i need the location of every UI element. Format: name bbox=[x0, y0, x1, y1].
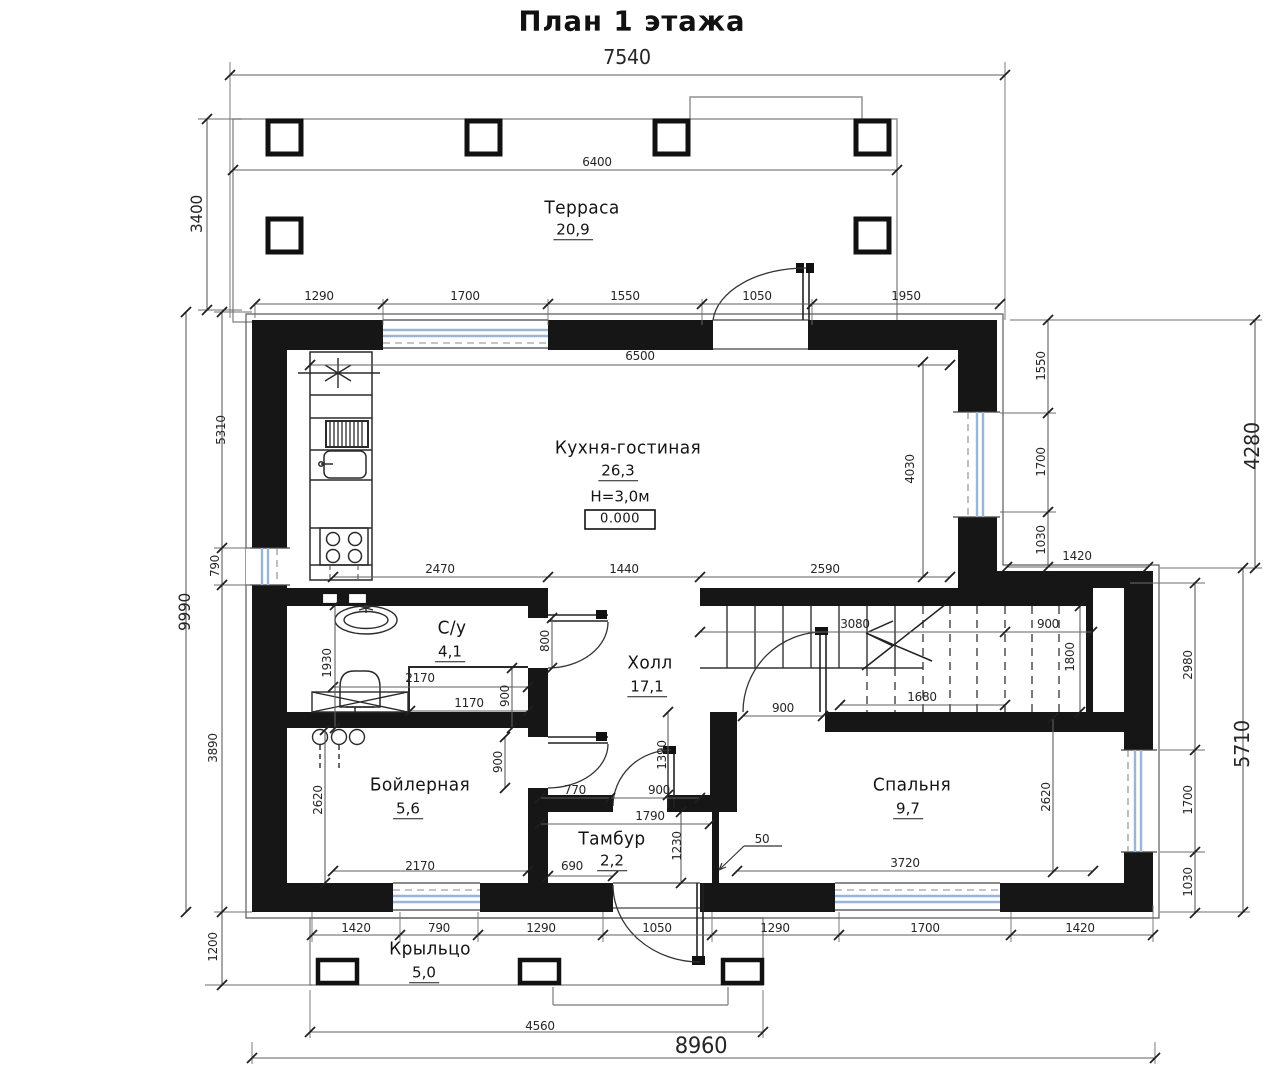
dimension-label: 1440 bbox=[609, 563, 638, 576]
dimension-label: 1230 bbox=[671, 831, 684, 860]
room-area: 9,7 bbox=[893, 801, 923, 819]
dimension-label: 2590 bbox=[810, 563, 839, 576]
dimension-label: 1030 bbox=[1035, 525, 1048, 554]
dimension-label: 1700 bbox=[910, 922, 939, 935]
room-name: Кухня-гостиная bbox=[555, 440, 701, 458]
room-area: 17,1 bbox=[627, 679, 666, 697]
dimension-label: 790 bbox=[209, 555, 222, 577]
dimension-label: 790 bbox=[428, 922, 450, 935]
dimension-label: 1420 bbox=[341, 922, 370, 935]
dimension-label: 1420 bbox=[1062, 550, 1091, 563]
dimension-label: 800 bbox=[539, 630, 552, 652]
dimension-label: 690 bbox=[561, 860, 583, 873]
dimension-label: 1390 bbox=[656, 740, 669, 769]
dimension-label: 1680 bbox=[907, 691, 936, 704]
dimension-label: 3720 bbox=[890, 857, 919, 870]
dimension-label: 900 bbox=[499, 685, 512, 707]
dimension-label: 1290 bbox=[526, 922, 555, 935]
room-name: С/у bbox=[438, 620, 467, 638]
dimension-label: 1700 bbox=[1182, 785, 1195, 814]
dimension-label: 5710 bbox=[1232, 720, 1252, 768]
dimension-label: 2170 bbox=[405, 672, 434, 685]
room-area: 20,9 bbox=[553, 222, 592, 240]
dimension-label: 900 bbox=[648, 784, 670, 797]
room-area: 2,2 bbox=[597, 853, 627, 871]
dimension-label: 1030 bbox=[1182, 867, 1195, 896]
dimension-label: 770 bbox=[564, 784, 586, 797]
room-name: Терраса bbox=[544, 200, 619, 218]
dimension-label: 2620 bbox=[1040, 782, 1053, 811]
dimension-label: 1050 bbox=[742, 290, 771, 303]
dimension-label: 900 bbox=[492, 751, 505, 773]
ceiling-height-label: H=3,0м bbox=[590, 489, 649, 505]
dimension-label: 1790 bbox=[635, 810, 664, 823]
dimension-label: 50 bbox=[755, 833, 770, 846]
dimension-label: 1050 bbox=[642, 922, 671, 935]
dimension-label: 1200 bbox=[207, 932, 220, 961]
dimension-label: 2170 bbox=[405, 860, 434, 873]
dimension-label: 4030 bbox=[904, 454, 917, 483]
dimension-label: 8960 bbox=[675, 1036, 728, 1058]
room-area: 5,0 bbox=[409, 965, 439, 983]
dimension-label: 900 bbox=[1037, 618, 1059, 631]
room-name: Бойлерная bbox=[370, 777, 470, 795]
dimension-label: 1930 bbox=[321, 648, 334, 677]
dimension-label: 1550 bbox=[1035, 351, 1048, 380]
dimension-label: 1700 bbox=[450, 290, 479, 303]
dimension-label: 6400 bbox=[582, 156, 611, 169]
dimension-label: 3400 bbox=[189, 195, 205, 233]
dimension-label: 5310 bbox=[215, 415, 228, 444]
dimension-label: 4280 bbox=[1242, 422, 1262, 470]
room-name: Тамбур bbox=[578, 831, 645, 849]
room-area: 4,1 bbox=[435, 644, 465, 662]
dimension-label: 1700 bbox=[1035, 447, 1048, 476]
room-area: 26,3 bbox=[598, 463, 637, 481]
dimension-label: 4560 bbox=[525, 1020, 554, 1033]
dimension-label: 9990 bbox=[177, 593, 193, 631]
dimension-label: 3890 bbox=[207, 733, 220, 762]
elevation-label: 0.000 bbox=[600, 512, 640, 526]
room-area: 5,6 bbox=[393, 801, 423, 819]
dimension-label: 6500 bbox=[625, 350, 654, 363]
room-name: Холл bbox=[627, 655, 672, 673]
dimension-label: 1950 bbox=[891, 290, 920, 303]
room-name: Крыльцо bbox=[389, 941, 471, 959]
dimension-label: 2980 bbox=[1182, 650, 1195, 679]
dimension-label: 1550 bbox=[610, 290, 639, 303]
dimension-label: 1420 bbox=[1065, 922, 1094, 935]
dimension-label: 1800 bbox=[1064, 642, 1077, 671]
room-name: Спальня bbox=[873, 777, 951, 795]
dimension-label: 1290 bbox=[760, 922, 789, 935]
labels-layer: 7540340064001290170015501050195099905310… bbox=[0, 0, 1277, 1080]
dimension-label: 3080 bbox=[840, 618, 869, 631]
floor-plan: План 1 этажа bbox=[0, 0, 1277, 1080]
dimension-label: 1290 bbox=[304, 290, 333, 303]
dimension-label: 1170 bbox=[454, 697, 483, 710]
dimension-label: 2470 bbox=[425, 563, 454, 576]
dimension-label: 2620 bbox=[312, 785, 325, 814]
dimension-label: 7540 bbox=[603, 47, 651, 67]
dimension-label: 900 bbox=[772, 702, 794, 715]
